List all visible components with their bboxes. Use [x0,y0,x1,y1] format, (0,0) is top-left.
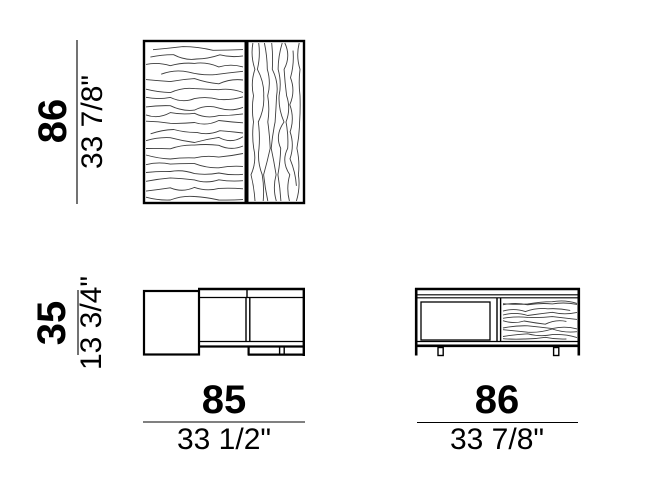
bottom-right-width-cm-label: 86 [475,380,520,420]
bottom-left-width-inch-label: 33 1/2" [177,425,271,455]
technical-drawing [0,0,657,493]
side-door-panel [144,291,199,355]
bottom-left-height-inch-label: 13 3/4" [77,276,107,370]
bottom-right-width-inch-label: 33 7/8" [450,425,544,455]
left-door-panel [421,302,490,340]
bottom-left-height-cm-label: 35 [32,301,72,346]
vertical-wood-grain [251,43,300,201]
top-left-height-inch-label: 33 7/8" [78,75,108,169]
bottom-left-width-cm-label: 85 [202,380,247,420]
horizontal-wood-grain [146,47,243,200]
top-left-view-drawing [144,41,304,203]
left-leg [438,348,443,356]
top-left-height-cm-label: 86 [33,99,73,144]
door-wood-grain [503,301,577,339]
bottom-left-view-drawing [144,288,305,356]
dimension-lines [77,40,578,423]
furniture-dimension-sheet: 86 33 7/8" 35 13 3/4" 85 33 1/2" 86 33 7… [0,0,657,493]
right-leg [554,348,559,356]
bottom-right-view-drawing [415,288,580,356]
